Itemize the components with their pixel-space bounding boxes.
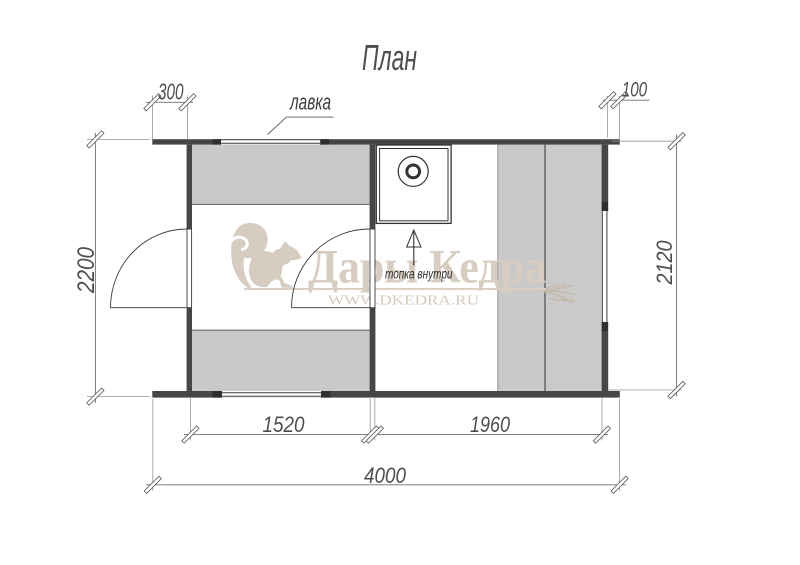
svg-text:1960: 1960	[470, 412, 511, 437]
svg-text:WWW.DKEDRA.RU: WWW.DKEDRA.RU	[328, 293, 479, 308]
svg-text:лавка: лавка	[289, 90, 331, 115]
svg-text:300: 300	[158, 78, 184, 104]
svg-text:100: 100	[622, 78, 648, 101]
svg-text:4000: 4000	[364, 463, 407, 488]
svg-text:2120: 2120	[652, 240, 677, 286]
svg-text:1520: 1520	[263, 412, 306, 437]
svg-text:План: План	[362, 37, 417, 78]
svg-text:топка внутри: топка внутри	[385, 267, 453, 282]
svg-text:2200: 2200	[73, 246, 100, 293]
